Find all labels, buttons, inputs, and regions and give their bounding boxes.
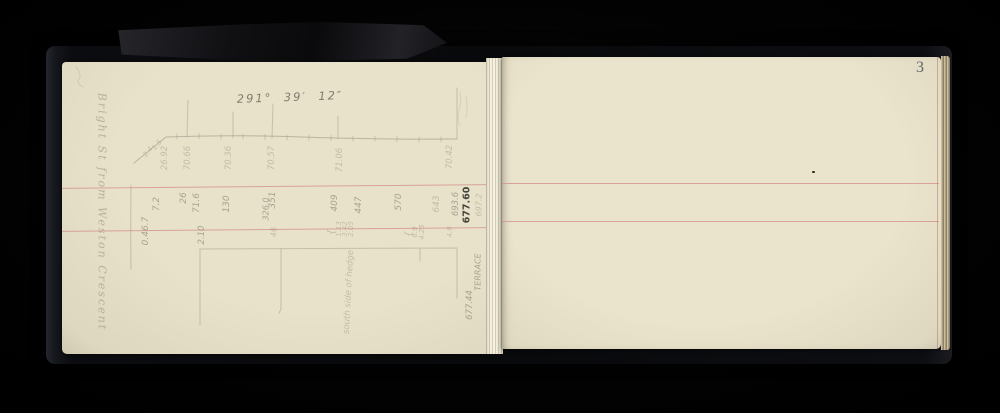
sketch-annotation: 693.6 — [451, 192, 461, 216]
sketch-annotation: 326.0 — [262, 198, 271, 221]
sketch-annotation: 697.2 — [475, 194, 484, 217]
sketch-annotation: 71.06 — [335, 148, 345, 172]
sketch-annotation: 46 — [270, 227, 279, 237]
left-page: 291° 39′ 12″ Bright St from Weston Cresc… — [62, 62, 487, 354]
right-page: 3 — [502, 57, 941, 349]
ruled-line — [502, 183, 939, 184]
sketch-annotation: 4.9 — [446, 226, 454, 237]
sketch-annotation: 26.92 — [160, 146, 170, 170]
sketch-annotation: 570 — [394, 193, 404, 210]
sketch-annotation: 26 — [179, 192, 189, 203]
sketch-annotation: 70.42 — [445, 145, 455, 169]
margin-line — [937, 57, 938, 349]
cover-flap — [115, 21, 447, 63]
sketch-annotation: 643 — [432, 195, 442, 212]
notebook-photo: 291° 39′ 12″ Bright St from Weston Cresc… — [0, 0, 1000, 413]
sketch-annotation: 0.46.7 — [141, 217, 151, 246]
sketch-annotation: 7.2 — [152, 197, 162, 211]
sketch-annotation: 677.44 — [465, 290, 475, 320]
sketch-annotation: 409 — [330, 194, 340, 211]
page-edges — [486, 58, 503, 354]
sketch-annotation: 130 — [222, 195, 232, 212]
sketch-annotation: 70.66 — [183, 146, 193, 170]
sketch-annotation: 677.60 — [462, 187, 473, 224]
closed-pages-edge — [941, 56, 950, 350]
sketch-annotation: 447 — [354, 196, 364, 213]
page-number: 3 — [916, 59, 924, 77]
dust-speck — [812, 171, 815, 173]
sketch-annotation: 71.6 — [192, 193, 202, 213]
sketch-annotation: 70.36 — [224, 146, 234, 170]
sketch-annotation: TERRACE — [474, 253, 483, 290]
ruled-line — [502, 221, 939, 222]
book-gutter — [486, 58, 503, 354]
street-caption: Bright St from Weston Crescent — [96, 93, 109, 331]
sketch-annotation: 2.10 — [197, 226, 207, 245]
sketch-annotation: 4.25 — [418, 224, 426, 240]
sketch-annotation: 2.05 — [347, 221, 355, 237]
sketch-annotation: 70.57 — [267, 146, 277, 170]
